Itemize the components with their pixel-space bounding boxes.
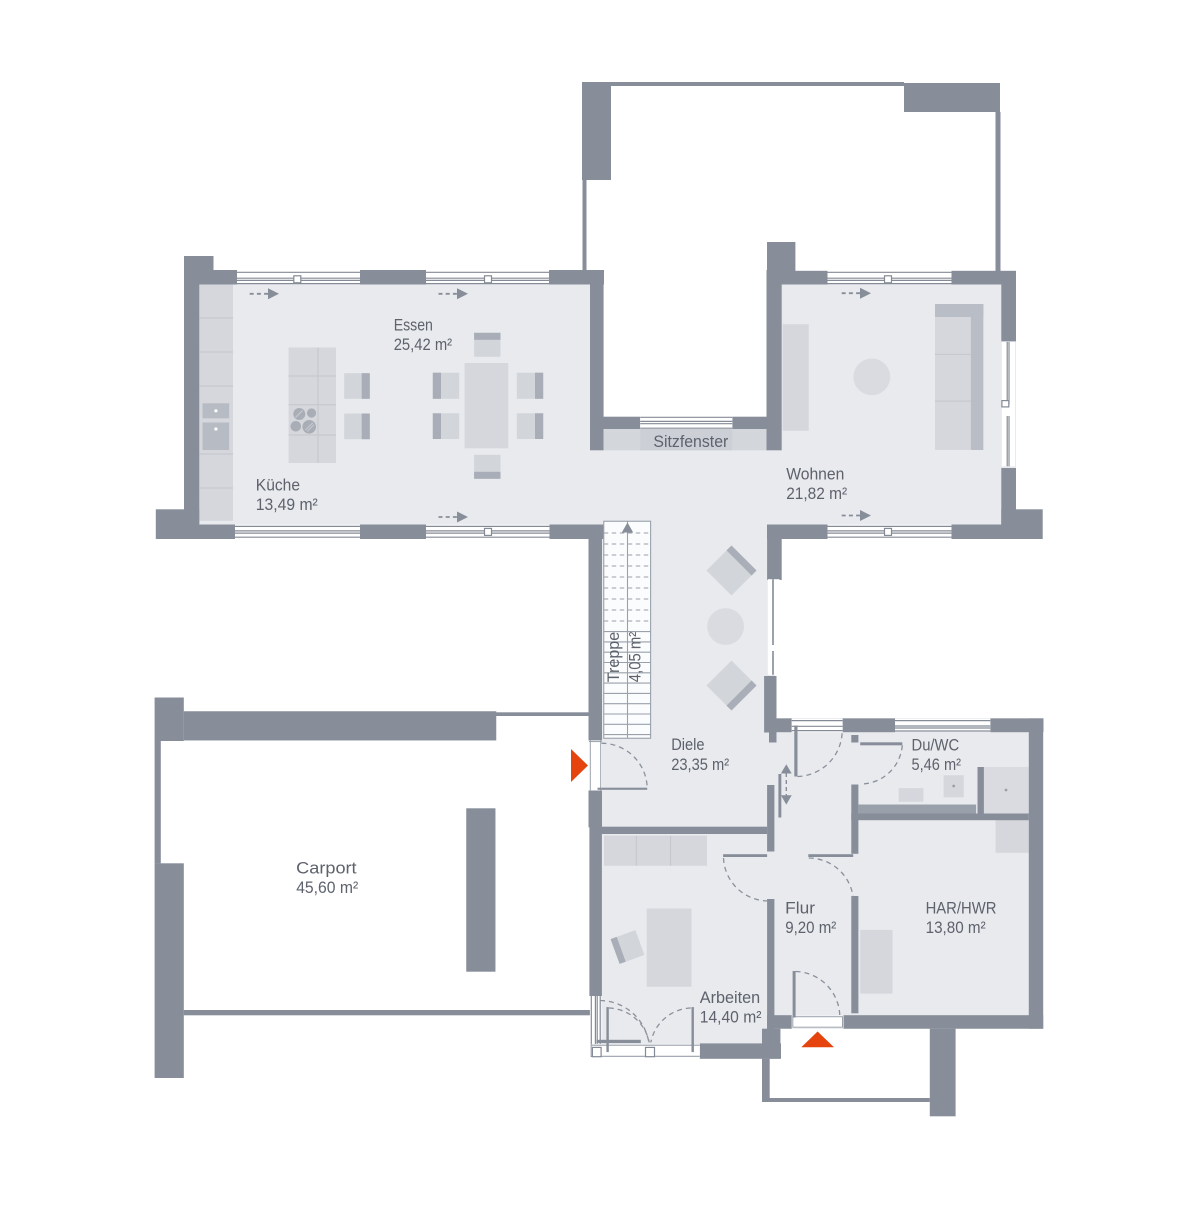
svg-text:45,60 m²: 45,60 m²: [296, 879, 358, 897]
svg-text:9,20 m²: 9,20 m²: [785, 919, 837, 937]
svg-text:13,80 m²: 13,80 m²: [926, 919, 987, 937]
svg-text:HAR/HWR: HAR/HWR: [926, 900, 997, 918]
svg-text:Arbeiten: Arbeiten: [700, 989, 760, 1007]
svg-text:25,42 m²: 25,42 m²: [394, 336, 453, 354]
svg-text:Treppe: Treppe: [605, 632, 623, 682]
svg-text:4,05 m²: 4,05 m²: [627, 631, 645, 682]
svg-text:13,49 m²: 13,49 m²: [256, 496, 318, 514]
svg-text:Essen: Essen: [394, 316, 433, 334]
svg-text:14,40 m²: 14,40 m²: [700, 1008, 762, 1026]
svg-text:Flur: Flur: [785, 900, 815, 918]
svg-text:Du/WC: Du/WC: [912, 737, 960, 755]
svg-text:5,46 m²: 5,46 m²: [912, 756, 962, 774]
svg-text:Sitzfenster: Sitzfenster: [653, 433, 728, 451]
svg-text:Diele: Diele: [671, 736, 704, 754]
svg-text:23,35 m²: 23,35 m²: [671, 756, 729, 774]
svg-text:21,82 m²: 21,82 m²: [786, 485, 847, 503]
svg-text:Wohnen: Wohnen: [786, 466, 844, 484]
svg-text:Carport: Carport: [296, 860, 357, 878]
svg-text:Küche: Küche: [256, 477, 300, 495]
